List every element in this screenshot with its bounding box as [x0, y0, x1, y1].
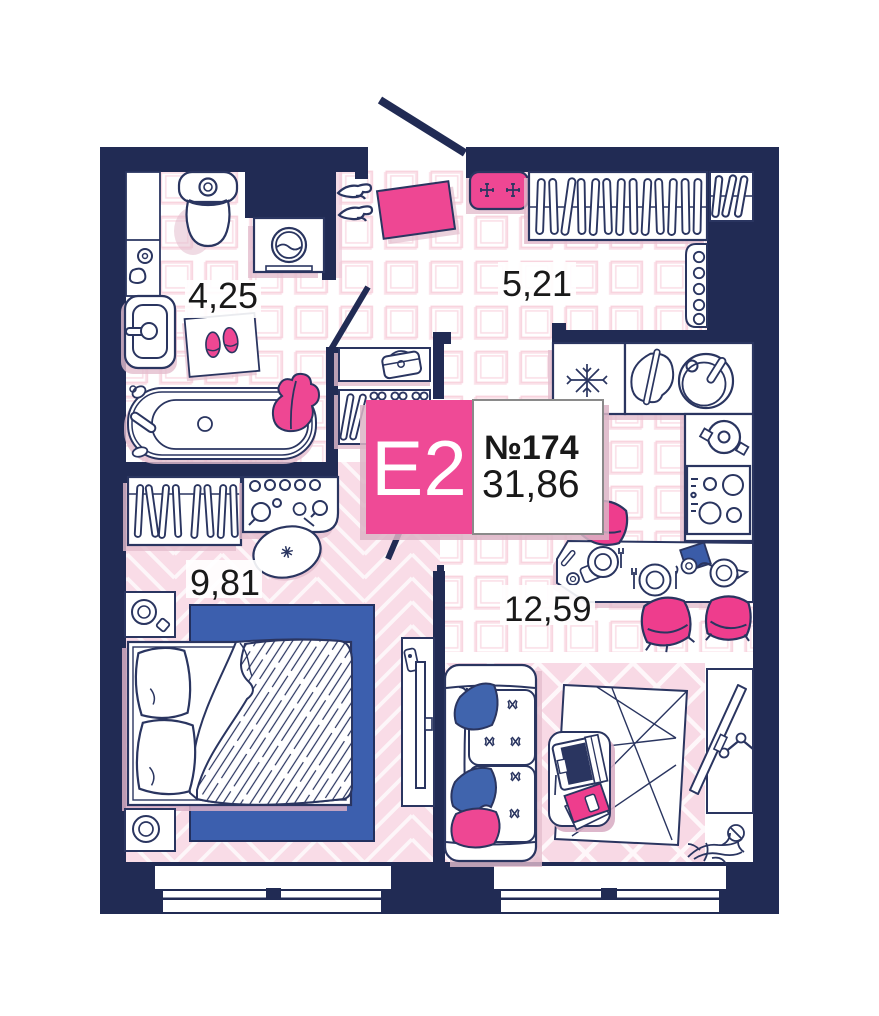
svg-text:31,86: 31,86 — [482, 463, 580, 506]
svg-text:№174: №174 — [484, 429, 579, 467]
svg-text:5,21: 5,21 — [502, 263, 572, 304]
svg-text:Е2: Е2 — [371, 424, 466, 512]
svg-text:4,25: 4,25 — [188, 275, 258, 316]
svg-text:12,59: 12,59 — [504, 590, 592, 629]
svg-text:9,81: 9,81 — [190, 562, 260, 603]
